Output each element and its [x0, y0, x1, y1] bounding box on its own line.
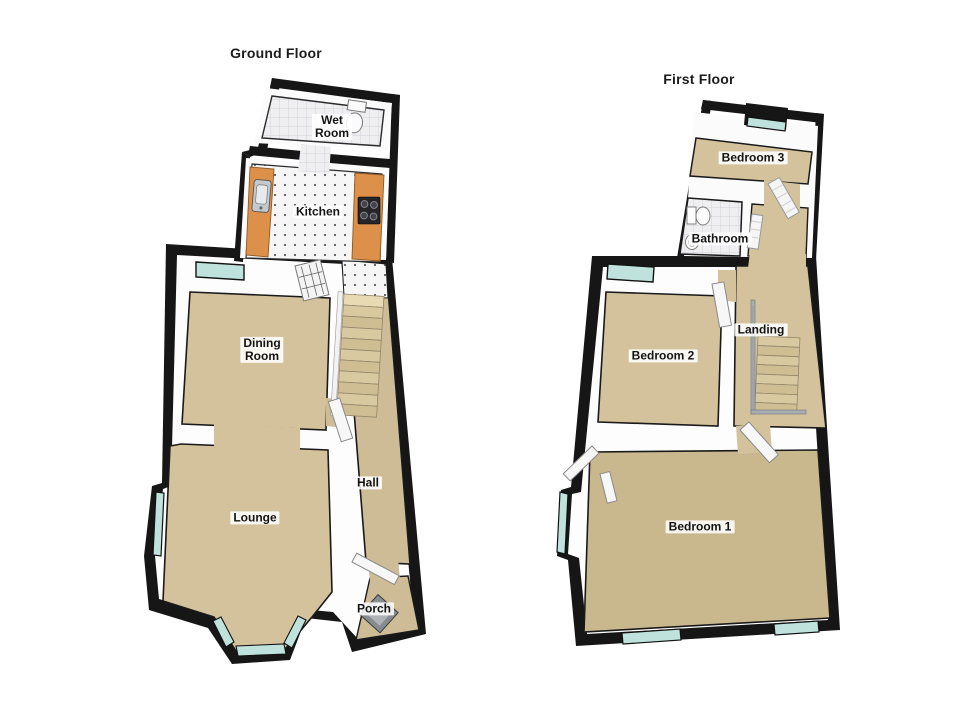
staircase-first: [755, 336, 800, 414]
kitchen-passage-tiles: [298, 144, 331, 174]
room-label-bedroom-2: Bedroom 2: [629, 349, 698, 362]
bedroom2-window: [607, 264, 654, 282]
first-floor-title: First Floor: [663, 71, 734, 87]
kitchen-sink: [252, 179, 272, 212]
bedroom1-bottom-window-right: [774, 621, 819, 635]
room-label-bedroom-1: Bedroom 1: [666, 520, 735, 533]
dining-lounge-opening: [214, 424, 300, 452]
floorplan-drawing: [0, 0, 980, 712]
room-label-hall: Hall: [354, 476, 382, 489]
first-floor-plan: [557, 100, 840, 646]
room-label-landing: Landing: [735, 323, 788, 336]
bathroom-toilet: [687, 207, 710, 225]
room-label-lounge: Lounge: [230, 511, 279, 524]
dining-window: [196, 262, 244, 280]
room-label-bathroom: Bathroom: [689, 232, 752, 245]
room-label-dining-room: Dining Room: [240, 337, 283, 363]
ground-floor-plan: [144, 78, 426, 664]
kitchen-wetroom-section: [234, 78, 400, 263]
room-label-wet-room: Wet Room: [312, 114, 352, 140]
room-label-bedroom-3: Bedroom 3: [719, 151, 788, 164]
room-label-porch: Porch: [354, 602, 394, 615]
hall-floor-tiled-top: [342, 260, 388, 298]
floorplan-canvas: Ground Floor First Floor Wet Room Kitche…: [0, 0, 980, 712]
bedroom1-floor: [584, 450, 830, 632]
corridor-landing-opening: [748, 252, 806, 270]
ground-floor-title: Ground Floor: [230, 45, 322, 61]
bay-window-bottom: [236, 644, 286, 656]
kitchen-hob: [358, 197, 380, 224]
room-label-kitchen: Kitchen: [293, 205, 343, 218]
